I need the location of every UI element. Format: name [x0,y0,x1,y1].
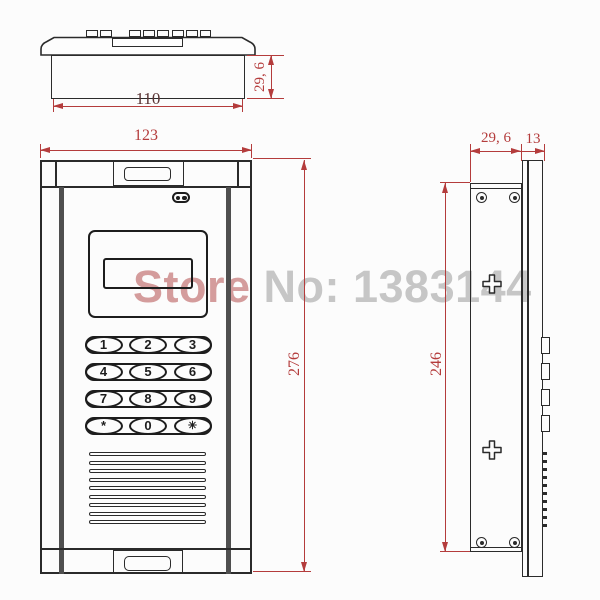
keypad-key: 1 [85,336,123,354]
cap-recess [112,38,183,47]
back-box-column [522,160,543,577]
keypad-key: 5 [129,363,167,381]
dim-side-height: 246 [429,341,445,387]
side-key-tab [541,363,550,380]
bottom-plate-window [124,556,171,571]
dim-side-depth: 29, 6 [472,130,520,146]
led-indicator-icon [172,192,190,203]
keypad-key: 9 [174,390,212,408]
dim-front-height: 276 [287,341,303,387]
keypad-row: 1 2 3 [85,336,212,354]
keypad-key: 7 [85,390,123,408]
screw-icon [509,537,520,548]
screw-icon [509,192,520,203]
keypad-key: 0 [129,417,167,435]
screw-icon [476,192,487,203]
side-key-tab [541,337,550,354]
mounting-cross-icon [482,274,502,294]
side-key-tab [541,389,550,406]
keypad-key: 3 [174,336,212,354]
panel-rail-right [226,187,231,574]
keypad-row: * 0 ✳ [85,417,212,435]
technical-drawing-canvas: Store No: 1383144 110 29, 6 [0,0,600,600]
side-body-outline [470,183,522,552]
keypad-key-hash: ✳ [174,417,212,435]
keypad-key: 8 [129,390,167,408]
dim-front-width: 123 [118,128,174,144]
mounting-cross-icon [482,440,502,460]
keypad-row: 7 8 9 [85,390,212,408]
dim-top-height: 29, 6 [252,54,268,100]
panel-rail-left [59,187,64,574]
keypad-row: 4 5 6 [85,363,212,381]
dim-top-inner-width: 110 [120,91,176,107]
keypad-key-star: * [85,417,123,435]
screw-icon [476,537,487,548]
side-key-tab [541,415,550,432]
keypad-key: 6 [174,363,212,381]
keypad-key: 2 [129,336,167,354]
name-plate-window [124,167,171,181]
keypad-key: 4 [85,363,123,381]
lcd-display-window [103,258,193,289]
